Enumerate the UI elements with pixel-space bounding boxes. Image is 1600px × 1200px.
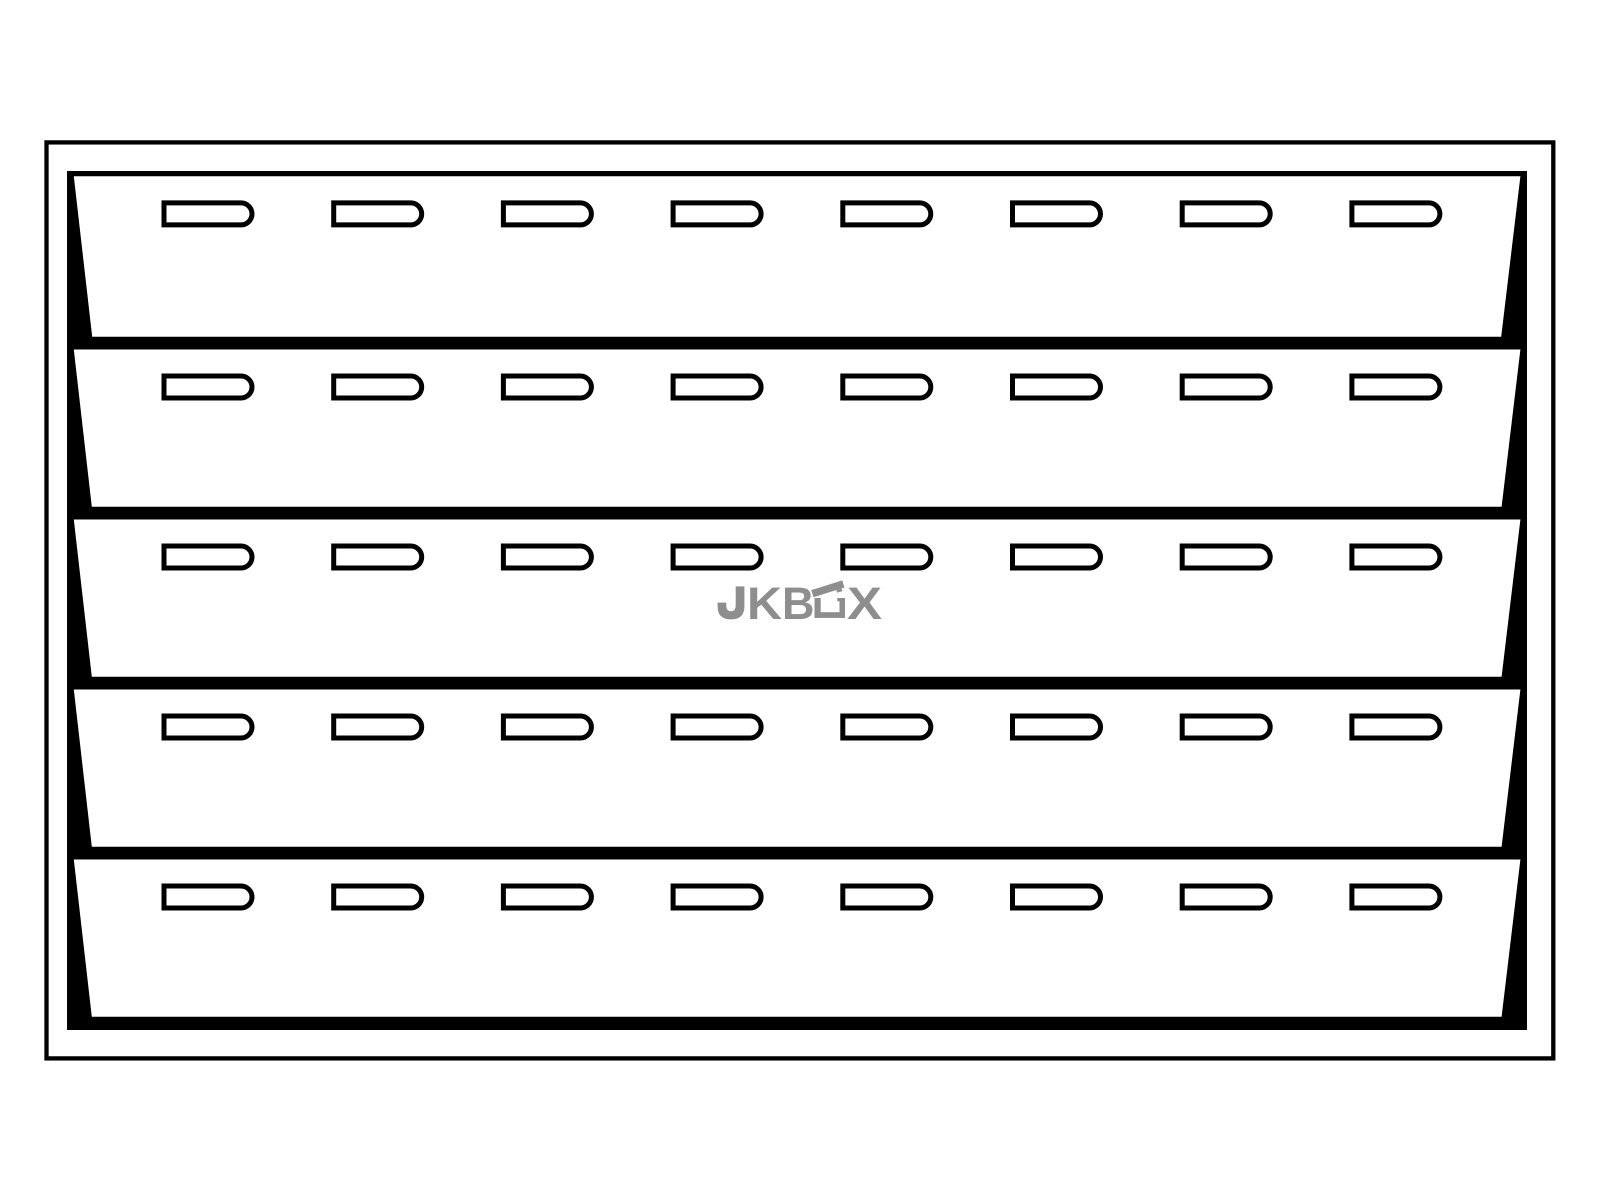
- svg-text:X: X: [847, 578, 882, 629]
- svg-text:K: K: [747, 578, 783, 629]
- svg-text:B: B: [782, 578, 815, 629]
